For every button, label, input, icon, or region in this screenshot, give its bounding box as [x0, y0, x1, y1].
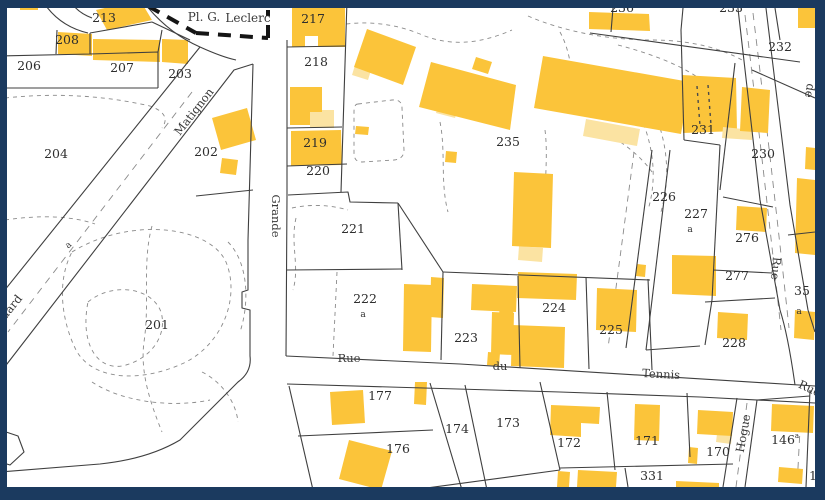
building-annex	[310, 110, 334, 128]
building-annex	[518, 246, 543, 262]
building	[471, 284, 517, 312]
parcel-label-235[interactable]: 235	[496, 134, 520, 149]
building	[672, 255, 716, 296]
parcel-label-203[interactable]: 203	[168, 66, 192, 81]
building	[771, 404, 814, 433]
building	[445, 151, 457, 163]
map-frame-edge	[0, 0, 7, 500]
street-label-Grande: Grande	[269, 194, 283, 237]
parcel-label-331[interactable]: 331	[640, 468, 664, 483]
parcel-label-218[interactable]: 218	[304, 54, 328, 69]
building	[355, 126, 369, 135]
cadastral-map[interactable]: Pl. G.LeclercMatignonouardaGrandeRueduTe…	[0, 0, 825, 500]
parcel-label-227[interactable]: 227	[684, 206, 708, 221]
street-label-Leclerc: Leclerc	[225, 11, 270, 25]
parcel-label-231[interactable]: 231	[691, 122, 715, 137]
building	[162, 39, 188, 64]
street-label-Tennis: Tennis	[642, 366, 681, 382]
street-label-Rue: Rue	[338, 351, 361, 365]
building	[512, 172, 553, 248]
parcel-label-217[interactable]: 217	[301, 11, 325, 26]
parcel-label-174[interactable]: 174	[445, 421, 469, 436]
map-content: Pl. G.LeclercMatignonouardaGrandeRueduTe…	[0, 0, 825, 500]
map-frame-edge	[0, 0, 825, 8]
building	[577, 470, 617, 487]
building	[330, 390, 365, 425]
parcel-label-171[interactable]: 171	[635, 433, 659, 448]
parcel-label-224[interactable]: 224	[542, 300, 566, 315]
building	[557, 471, 570, 487]
building	[795, 178, 815, 255]
parcel-label-a[interactable]: a	[687, 225, 693, 235]
parcel-label-146[interactable]: 146	[771, 432, 795, 447]
parcel-label-230[interactable]: 230	[751, 146, 775, 161]
parcel-label-35[interactable]: 35	[794, 283, 810, 298]
cadastral-map-viewport[interactable]: Pl. G.LeclercMatignonouardaGrandeRueduTe…	[0, 0, 825, 500]
parcel-label-221[interactable]: 221	[341, 221, 365, 236]
building	[403, 284, 432, 352]
building	[778, 467, 803, 484]
parcel-label-173[interactable]: 173	[496, 415, 520, 430]
parcel-label-225[interactable]: 225	[599, 322, 623, 337]
parcel-label-201[interactable]: 201	[145, 317, 169, 332]
parcel-label-223[interactable]: 223	[454, 330, 478, 345]
parcel-label-222[interactable]: 222	[353, 291, 377, 306]
parcel-label-a[interactable]: a	[795, 432, 799, 440]
parcel-label-232[interactable]: 232	[768, 39, 792, 54]
map-frame-edge	[815, 0, 825, 500]
parcel-label-219[interactable]: 219	[303, 135, 327, 150]
parcel-label-176[interactable]: 176	[386, 441, 410, 456]
building	[740, 87, 770, 133]
building	[93, 39, 160, 62]
parcel-label-276[interactable]: 276	[735, 230, 759, 245]
street-label-du: du	[493, 359, 508, 373]
parcel-label-228[interactable]: 228	[722, 335, 746, 350]
map-frame-edge	[0, 487, 825, 500]
parcel-label-177[interactable]: 177	[368, 388, 392, 403]
parcel-label-213[interactable]: 213	[92, 10, 116, 25]
parcel-label-226[interactable]: 226	[652, 189, 676, 204]
street-label-PlG: Pl. G.	[188, 10, 221, 24]
building	[636, 264, 646, 277]
parcel-label-a[interactable]: a	[796, 307, 802, 317]
parcel-label-204[interactable]: 204	[44, 146, 68, 161]
parcel-label-a[interactable]: a	[360, 310, 366, 320]
parcel-label-170[interactable]: 170	[706, 444, 730, 459]
building	[491, 312, 514, 355]
parcel-label-208[interactable]: 208	[55, 32, 79, 47]
building	[805, 147, 815, 170]
building	[697, 410, 733, 436]
parcel-label-207[interactable]: 207	[110, 60, 134, 75]
parcel-label-277[interactable]: 277	[725, 268, 749, 283]
building	[414, 382, 427, 405]
parcel-label-220[interactable]: 220	[306, 163, 330, 178]
parcel-label-206[interactable]: 206	[17, 58, 41, 73]
building	[220, 158, 238, 175]
parcel-label-172[interactable]: 172	[557, 435, 581, 450]
street-label-Rue: Rue	[768, 256, 784, 280]
parcel-label-202[interactable]: 202	[194, 144, 218, 159]
